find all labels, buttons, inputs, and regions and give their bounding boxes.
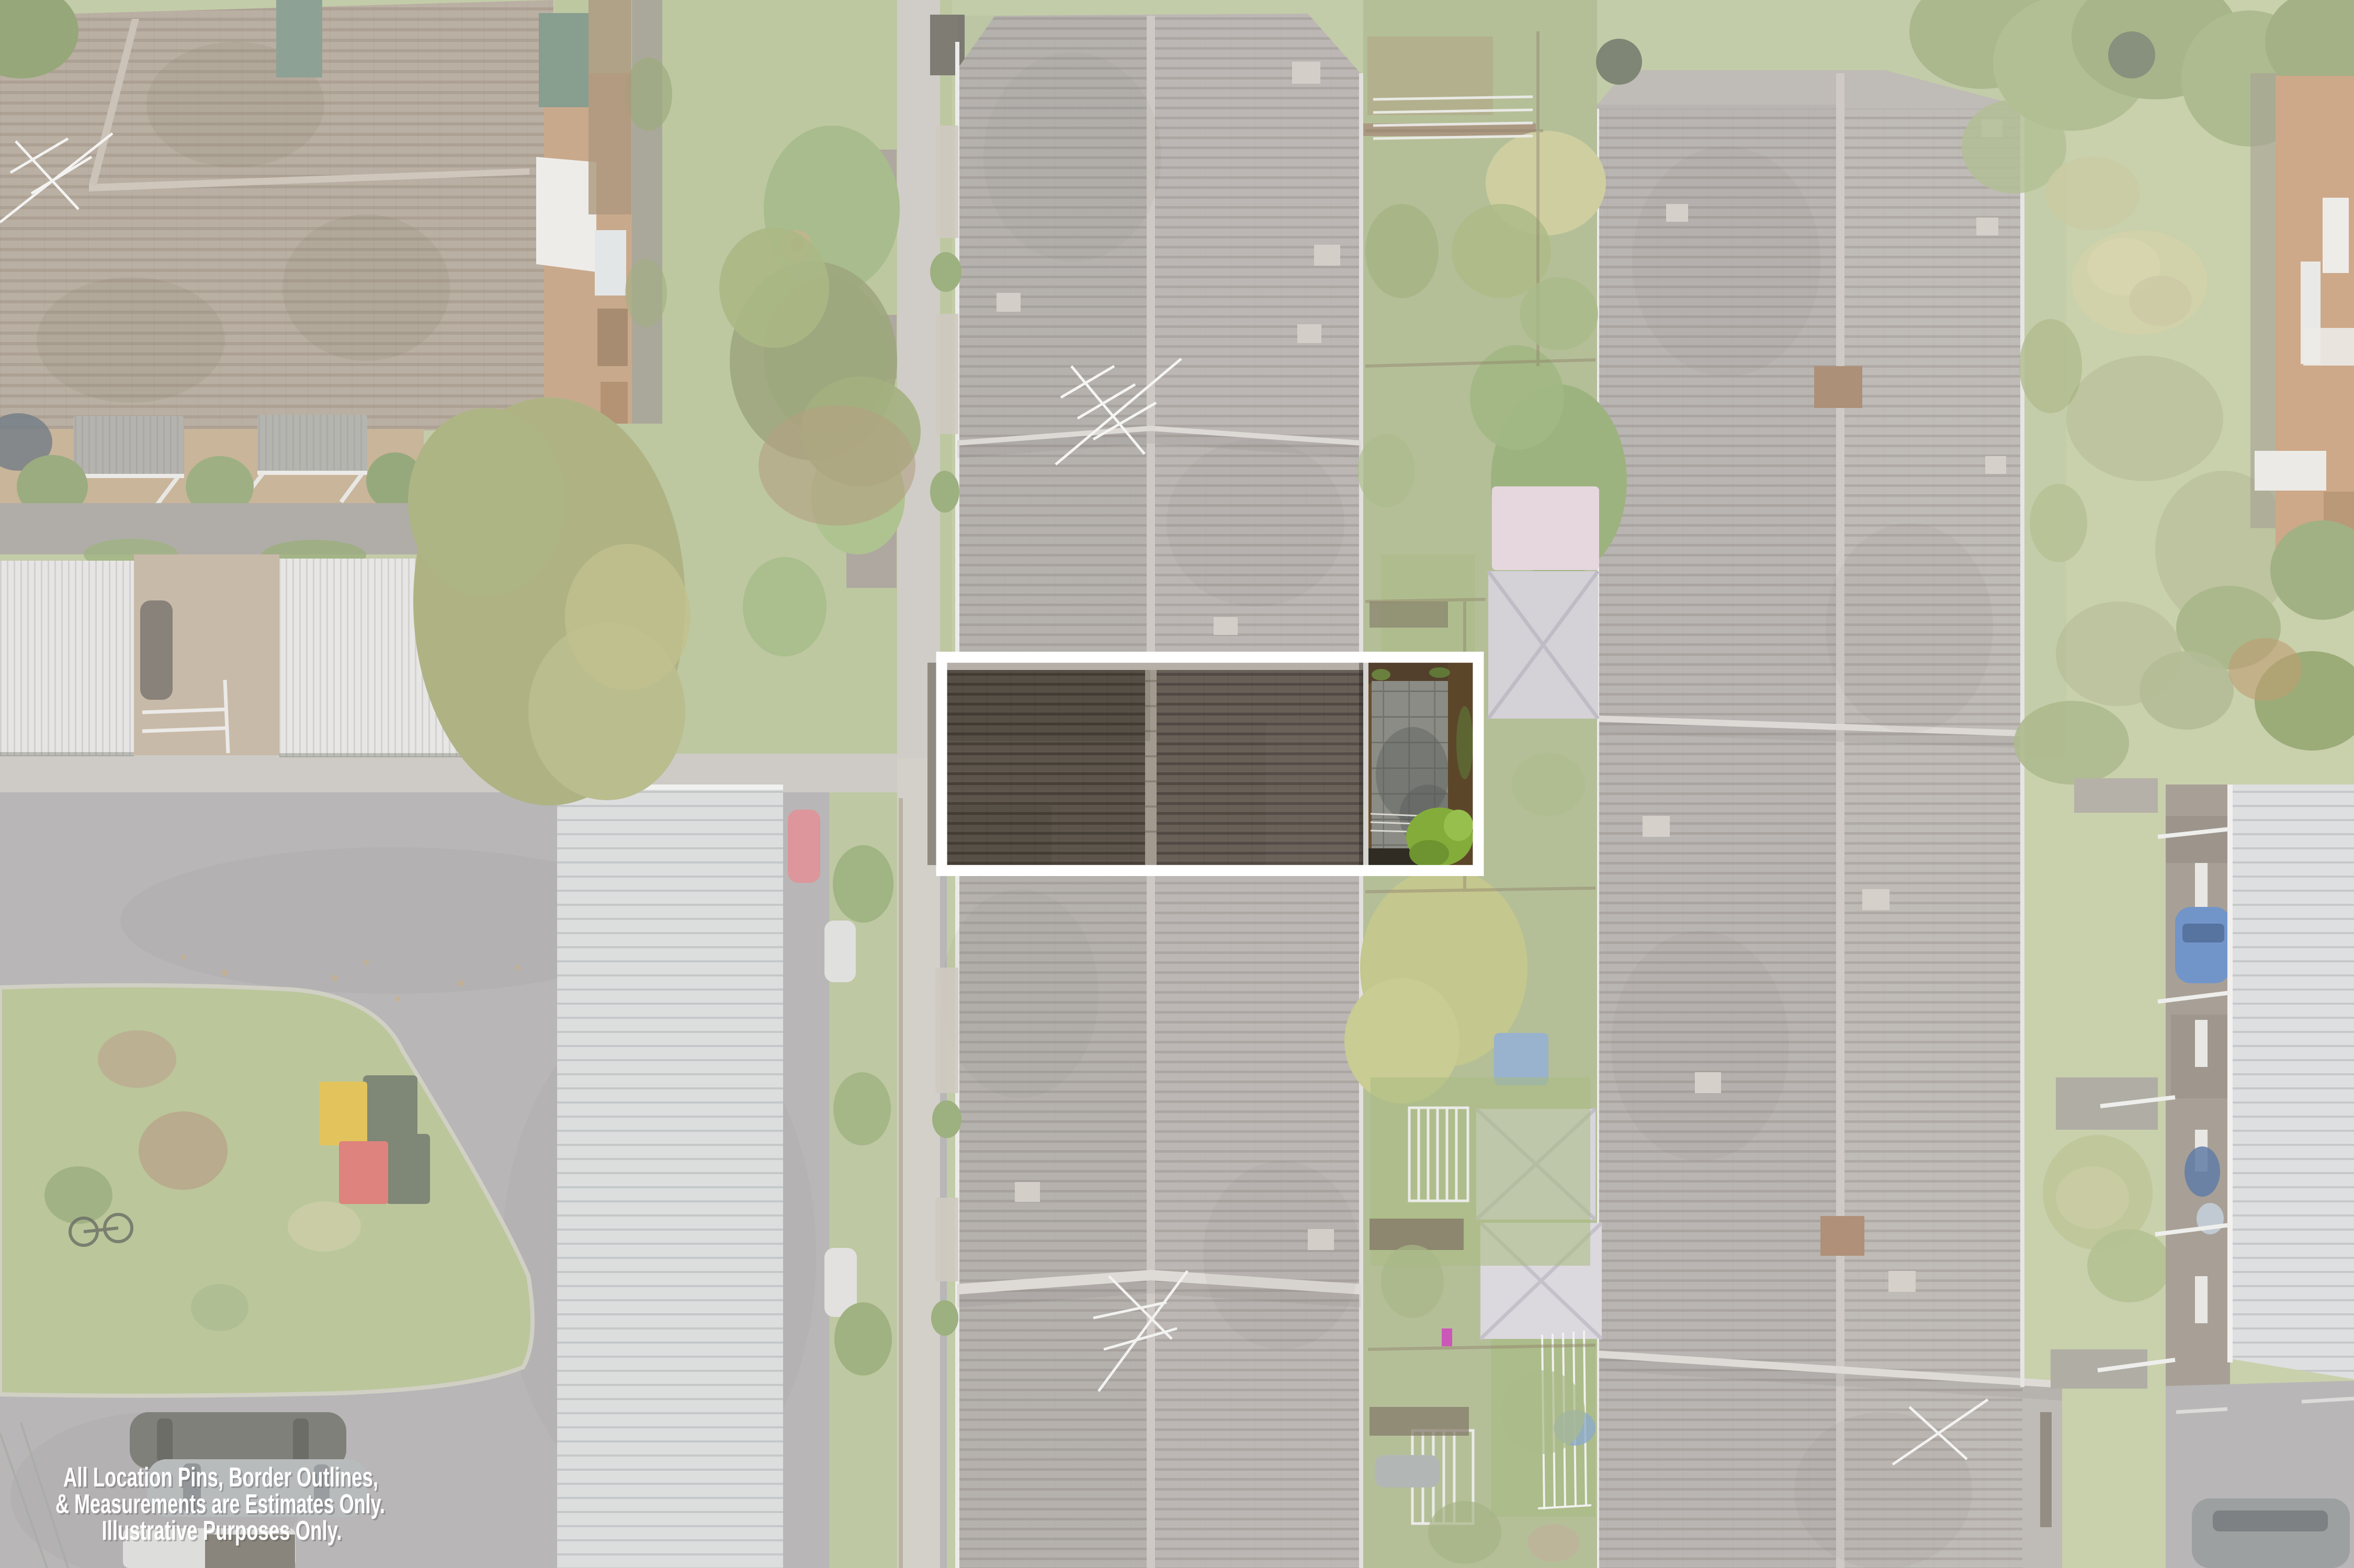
svg-text:Illustrative Purposes Only.: Illustrative Purposes Only. <box>102 1516 342 1546</box>
svg-text:& Measurements are Estimates O: & Measurements are Estimates Only. <box>55 1489 385 1519</box>
svg-text:All Location Pins, Border Outl: All Location Pins, Border Outlines, <box>63 1462 378 1493</box>
